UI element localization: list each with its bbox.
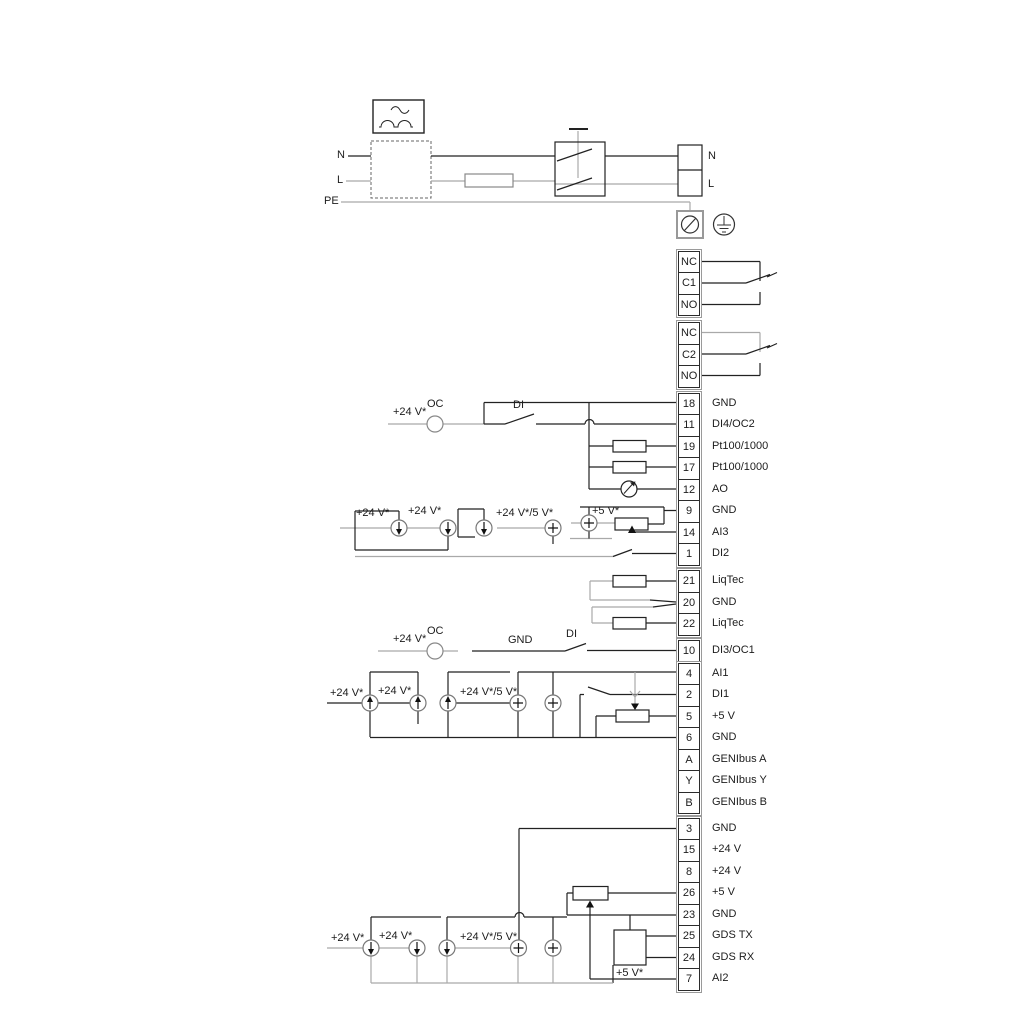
label-24v: +24 V* [356,507,389,520]
terminal-1: 1 [678,543,700,566]
terminal-label-18: GND [712,393,768,415]
terminal-label-B: GENIbus B [712,792,767,814]
terminal-label-24: GDS RX [712,947,754,969]
terminal-label-4: AI1 [712,663,767,685]
wiring-diagram: NCC1NO NCC2NO 18111917129141GNDDI4/OC2Pt… [0,0,1024,1024]
gray-power-wires [341,131,690,212]
label-n-right: N [708,150,716,163]
terminal-2: 2 [678,684,700,707]
terminal-label-3: GND [712,818,754,840]
humps-icon [379,121,413,128]
label-5v: +5 V* [592,505,619,518]
potentiometer-icon [573,887,608,901]
liqtec-sensor-icon [613,576,646,588]
liqtec-sensor-icon [613,618,646,630]
oc-source-icon [427,643,443,659]
terminal-label-12: AO [712,479,768,501]
terminal-B: B [678,792,700,815]
terminal-label-Y: GENIbus Y [712,770,767,792]
input-module-box [371,141,431,198]
label-24v: +24 V* [393,633,426,646]
label-pe: PE [324,195,339,208]
label-24v-5v: +24 V*/5 V* [460,686,517,699]
di4-oc2-section [388,403,676,498]
terminal-22: 22 [678,613,700,636]
terminal-6: 6 [678,727,700,750]
terminal-7: 7 [678,968,700,991]
terminal-5: 5 [678,706,700,729]
terminal-14: 14 [678,522,700,545]
label-24v: +24 V* [393,406,426,419]
gds-sensor-box [614,930,646,965]
terminal-label-25: GDS TX [712,925,754,947]
terminal-label-14: AI3 [712,522,768,544]
terminal-label-5: +5 V [712,706,767,728]
terminal-label-15: +24 V [712,839,754,861]
terminal-label-22: LiqTec [712,613,744,635]
terminal-C1: C1 [678,272,700,295]
label-24v-5v: +24 V*/5 V* [496,507,553,520]
filter-box-icon [373,100,424,133]
label-l-left: L [337,174,343,187]
terminal-18: 18 [678,393,700,416]
label-24v: +24 V* [330,687,363,700]
label-di: DI [566,628,577,641]
terminal-label-21: LiqTec [712,570,744,592]
relay-terminal-block-2: NCC2NO [676,320,702,390]
terminal-label-20: GND [712,592,744,614]
terminal-label-1: DI2 [712,543,768,565]
oc-source-icon [427,416,443,432]
wiper-arrow-icon [586,901,594,908]
label-oc: OC [427,398,444,411]
terminal-label-23: GND [712,904,754,926]
terminal-label-11: DI4/OC2 [712,414,768,436]
label-n-left: N [337,149,345,162]
terminal-20: 20 [678,592,700,615]
mains-section [341,100,735,238]
label-5v: +5 V* [616,967,643,980]
terminal-24: 24 [678,947,700,970]
terminal-NO: NO [678,294,700,317]
potentiometer-icon [616,710,649,722]
terminal-C2: C2 [678,344,700,367]
terminal-label-19: Pt100/1000 [712,436,768,458]
pt100-resistor-icon [613,441,646,453]
relay-contact-1 [702,262,777,305]
terminal-11: 11 [678,414,700,437]
sine-icon [391,107,409,114]
terminal-23: 23 [678,904,700,927]
label-24v: +24 V* [331,932,364,945]
terminal-12: 12 [678,479,700,502]
terminal-4: 4 [678,663,700,686]
pe-wire [341,202,690,212]
pt100-resistor-icon [613,462,646,474]
terminal-3: 3 [678,818,700,841]
supply-source-icons [391,515,597,536]
relay-terminal-block-1: NCC1NO [676,249,702,319]
terminal-21: 21 [678,570,700,593]
liqtec-section [590,576,676,630]
label-24v-5v: +24 V*/5 V* [460,931,517,944]
terminal-label-2: DI1 [712,684,767,706]
ai1-di1-section [327,672,676,738]
terminal-label-26: +5 V [712,882,754,904]
terminal-10: 10 [678,640,700,663]
terminal-25: 25 [678,925,700,948]
terminal-label-A: GENIbus A [712,749,767,771]
label-24v: +24 V* [379,930,412,943]
terminal-label-8: +24 V [712,861,754,883]
terminal-label-10: DI3/OC1 [712,640,755,662]
label-oc: OC [427,625,444,638]
terminal-NC: NC [678,322,700,345]
terminal-Y: Y [678,770,700,793]
terminal-NO: NO [678,365,700,388]
terminal-label-17: Pt100/1000 [712,457,768,479]
terminal-NC: NC [678,251,700,274]
terminal-8: 8 [678,861,700,884]
terminal-17: 17 [678,457,700,480]
terminal-A: A [678,749,700,772]
terminal-9: 9 [678,500,700,523]
terminal-26: 26 [678,882,700,905]
label-l-right: L [708,178,714,191]
terminal-block-bottom: 3158262325247GND+24 V+24 V+5 VGNDGDS TXG… [676,816,702,993]
terminal-label-9: GND [712,500,768,522]
terminal-block-mid: 4256AYBAI1DI1+5 VGNDGENIbus AGENIbus YGE… [676,661,702,817]
terminal-label-6: GND [712,727,767,749]
wiper-arrow-icon [631,704,639,711]
label-24v: +24 V* [378,685,411,698]
terminal-15: 15 [678,839,700,862]
terminal-block-liqtec: 212022LiqTecGNDLiqTec [676,568,702,638]
gds-ai2-section [327,829,676,984]
terminal-label-7: AI2 [712,968,754,990]
terminal-19: 19 [678,436,700,459]
label-di: DI [513,399,524,412]
terminal-block-upper: 18111917129141GNDDI4/OC2Pt100/1000Pt100/… [676,391,702,568]
fuse-icon [465,174,513,187]
label-gnd: GND [508,634,532,647]
relay-contact-2 [702,333,777,376]
label-24v: +24 V* [408,505,441,518]
